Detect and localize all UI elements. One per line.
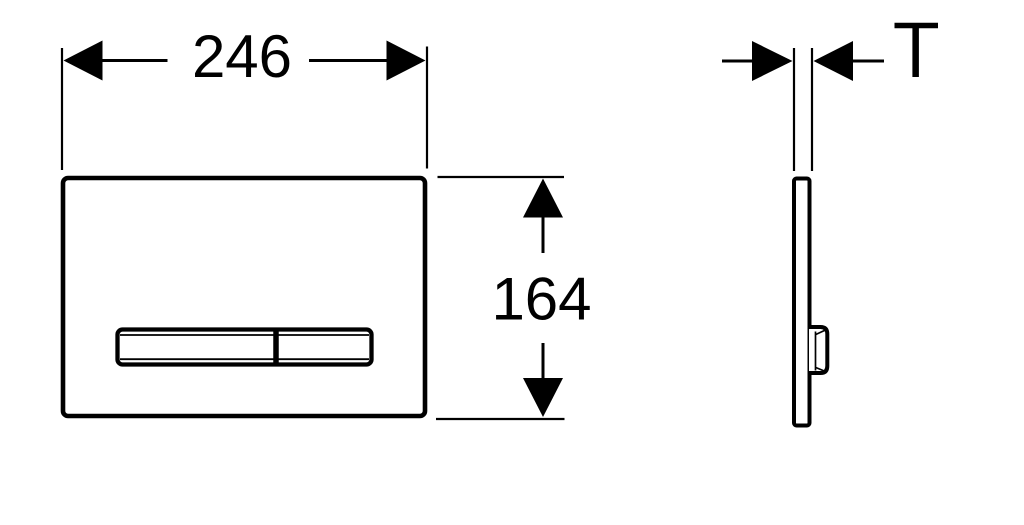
svg-text:164: 164	[491, 266, 591, 333]
svg-text:246: 246	[192, 23, 292, 90]
